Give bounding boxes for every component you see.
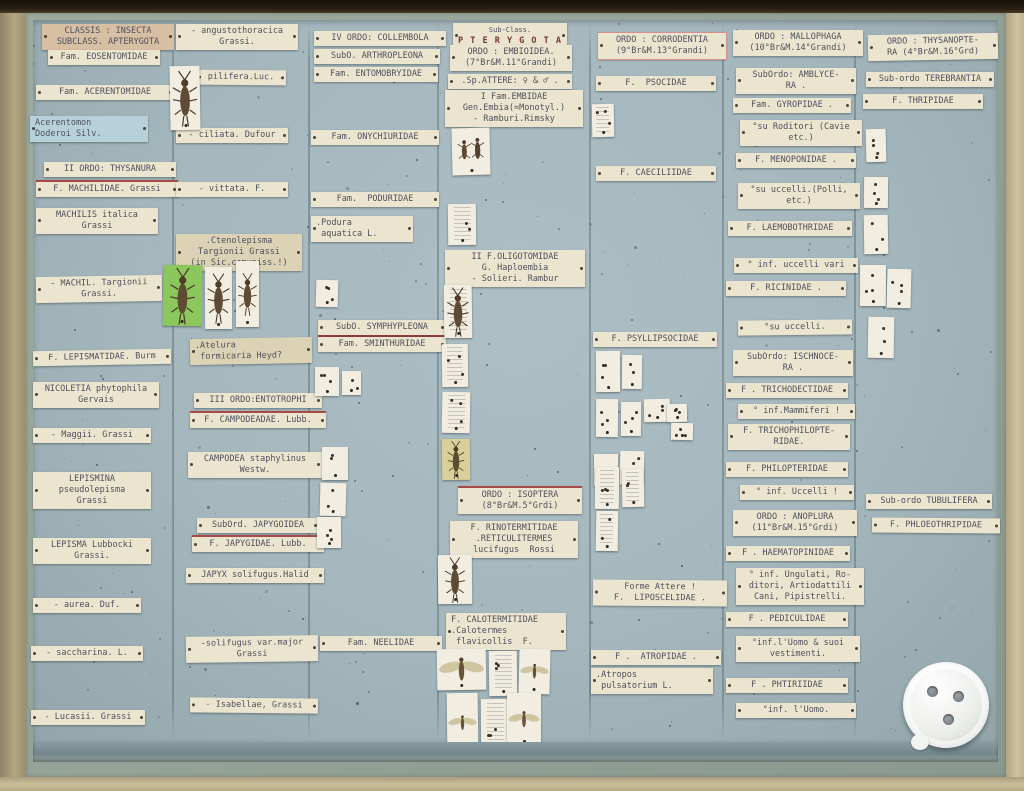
board-speck — [211, 612, 212, 613]
specimen-card — [595, 467, 620, 509]
specimen-card — [317, 517, 341, 548]
specimen-card — [864, 177, 888, 208]
label-atropos: .Atropos pulsatorium L. — [591, 668, 713, 694]
board-speck — [628, 264, 629, 265]
label-sub-ordo-terebrantia: Sub-ordo TEREBRANTIA — [866, 72, 994, 87]
board-speck — [715, 565, 716, 566]
specimen-dot — [495, 667, 498, 670]
board-speck — [387, 540, 388, 541]
board-speck — [521, 609, 523, 611]
board-speck — [93, 661, 95, 663]
board-speck — [901, 446, 903, 448]
board-speck — [100, 375, 102, 377]
board-speck — [618, 411, 620, 413]
board-speck — [302, 618, 304, 620]
specimen-card — [592, 104, 615, 137]
board-speck — [883, 307, 885, 309]
specimen-dot — [872, 139, 875, 142]
label-fam-poduridae: Fam. PODURIDAE — [311, 192, 439, 207]
board-speck — [163, 375, 165, 377]
label-atelura: .Atelura formicaria Heyd? — [190, 337, 312, 365]
specimen-dot — [465, 222, 468, 225]
board-speck — [907, 601, 909, 603]
board-speck — [712, 23, 713, 24]
specimen-dot — [877, 198, 880, 201]
board-speck — [634, 192, 635, 193]
label-f-laemobothridae: F. LAEMOBOTHRIDAE — [728, 221, 852, 236]
specimen-dot — [900, 290, 903, 293]
board-speck — [937, 70, 938, 71]
specimen-card — [442, 392, 471, 434]
specimen-dot — [320, 374, 323, 377]
specimen-dot — [865, 290, 868, 293]
label-ii-ordo-thysanura: II ORDO: THYSANURA — [44, 162, 176, 177]
board-speck — [198, 446, 201, 449]
board-speck — [839, 670, 840, 671]
specimen-dot — [873, 192, 876, 195]
label-subord-japygoidea: SubOrd. JAPYGOIDEA — [197, 518, 319, 533]
board-speck — [529, 566, 530, 567]
specimen-card — [163, 265, 203, 327]
specimen-dot — [876, 152, 879, 155]
board-speck — [358, 402, 360, 404]
board-speck — [92, 153, 93, 154]
label-iii-ordo-entotrophi: III ORDO:ENTOTROPHI — [194, 393, 322, 408]
board-speck — [727, 78, 729, 80]
label-campodea-staphylinus: CAMPODEA staphylinus Westw. — [188, 452, 322, 478]
board-speck — [847, 246, 849, 248]
board-speck — [130, 519, 131, 520]
label-f-atropidae: F . ATROPIDAE . — [591, 650, 721, 665]
board-speck — [864, 396, 865, 397]
label-f-menoponidae: F. MENOPONIDAE . — [736, 153, 856, 168]
specimen-dot — [604, 364, 607, 367]
board-speck — [604, 251, 605, 252]
board-speck — [856, 384, 858, 386]
board-speck — [291, 168, 293, 170]
specimen-dot — [604, 488, 607, 491]
label-machil-targionii: - MACHIL. Targionii Grassi. — [36, 275, 162, 303]
board-speck — [112, 573, 113, 574]
label-machilis-italica: MACHILIS italica Grassi — [36, 208, 158, 234]
specimen-card — [489, 651, 518, 696]
board-speck — [856, 450, 858, 452]
board-speck — [257, 96, 260, 99]
label-japyx-solifugus-halid: JAPYX solifugus.Halid — [186, 568, 324, 583]
board-speck — [558, 228, 560, 230]
label-inf-ungulati-ro: ° inf. Ungulati, Ro- ditori, Artiodattil… — [736, 568, 864, 605]
board-speck — [851, 338, 853, 340]
board-speck — [425, 283, 427, 285]
specimen-dot — [604, 110, 607, 113]
board-speck — [118, 731, 119, 732]
label-subordo-amblyce: SubOrdo: AMBLYCE- RA . — [736, 68, 856, 94]
label-fam-onychiuridae: Fam. ONYCHIURIDAE — [311, 130, 439, 145]
specimen-dot — [900, 284, 903, 287]
board-speck — [383, 249, 384, 250]
board-speck — [389, 261, 390, 262]
board-speck — [182, 204, 184, 206]
specimen-dot — [608, 121, 611, 124]
board-speck — [204, 668, 207, 671]
board-speck — [486, 364, 488, 366]
board-speck — [971, 142, 973, 144]
label-f-caeciliidae: F. CAECILIIDAE — [596, 166, 716, 181]
board-speck — [680, 395, 682, 397]
label-subordo-ischnoce: SubOrdo: ISCHNOCE- RA . — [733, 350, 853, 376]
board-speck — [232, 365, 234, 367]
label-f-rinotermitidae: F. RINOTERMITIDAE .RETICULITERMES lucifu… — [450, 521, 578, 558]
specimen-dot — [356, 387, 359, 390]
board-speck — [285, 501, 286, 502]
board-speck — [164, 527, 166, 529]
label-iv-ordo-collembola: IV ORDO: COLLEMBOLA — [314, 31, 446, 46]
specimen-dot — [882, 340, 885, 343]
specimen-dot — [871, 222, 874, 225]
specimen-card — [596, 351, 620, 392]
board-speck — [985, 430, 986, 431]
repellent-disc — [903, 662, 989, 748]
specimen-dot — [872, 144, 875, 147]
label-inf-uccelli: ° inf. Uccelli ! — [740, 485, 854, 500]
specimen-card — [622, 355, 642, 389]
board-speck — [481, 604, 483, 606]
case-frame-top — [0, 0, 1024, 13]
label-lucasii-grassi: - Lucasii. Grassi — [31, 710, 145, 725]
board-speck — [838, 345, 839, 346]
board-speck — [711, 545, 712, 546]
board-speck — [361, 490, 363, 492]
board-speck — [427, 443, 429, 445]
label-fam-acerentomidae: Fam. ACERENTOMIDAE — [36, 85, 174, 100]
board-speck — [809, 243, 811, 245]
specimen-card — [451, 128, 490, 176]
label-solifugus-var-major: -solifugus var.major Grassi — [186, 635, 318, 663]
board-speck — [420, 263, 422, 265]
label-f-thripidae: F. THRIPIDAE — [863, 94, 983, 109]
board-speck — [704, 213, 705, 214]
board-speck — [611, 728, 613, 730]
label-isabellae-grassi: - Isabellae, Grassi — [190, 697, 318, 713]
board-speck — [440, 93, 441, 94]
board-speck — [319, 314, 322, 317]
board-speck — [684, 274, 685, 275]
board-speck — [634, 246, 637, 249]
specimen-dot — [871, 274, 874, 277]
board-speck — [82, 444, 84, 446]
specimen-dot — [600, 411, 603, 414]
board-speck — [631, 319, 633, 321]
specimen-dot — [632, 371, 635, 374]
board-speck — [302, 51, 304, 53]
board-speck — [82, 419, 83, 420]
board-speck — [681, 565, 683, 567]
label-ordo-embioidea: ORDO : EMBIOIDEA. (7°Br&M.11°Grandi) — [450, 45, 572, 71]
case-frame-bottom — [0, 777, 1024, 791]
specimen-dot — [684, 434, 687, 437]
board-speck — [261, 144, 262, 145]
specimen-dot — [326, 505, 329, 508]
board-speck — [327, 161, 329, 163]
board-speck — [939, 617, 941, 619]
case-frame-left — [0, 13, 26, 791]
board-speck — [773, 65, 774, 66]
board-speck — [215, 695, 216, 696]
label-fam-entomobryidae: Fam. ENTOMOBRYIDAE — [314, 67, 438, 82]
board-speck — [150, 673, 151, 674]
board-speck — [900, 87, 902, 89]
specimen-dot — [661, 409, 664, 412]
board-speck — [480, 293, 482, 295]
board-speck — [517, 184, 518, 185]
board-speck — [905, 65, 906, 66]
board-speck — [537, 216, 538, 217]
board-speck — [71, 461, 72, 462]
board-speck — [392, 475, 394, 477]
label-su-uccelli-polli: °su uccelli.(Polli, etc.) — [738, 183, 860, 209]
specimen-dot — [675, 434, 678, 437]
label-f-phtiriidae: F . PHTIRIIDAE — [726, 678, 848, 693]
board-speck — [153, 245, 154, 246]
specimen-dot — [461, 372, 464, 375]
display-case: CLASSIS : INSECTA SUBCLASS. APTERYGOTAFa… — [0, 0, 1024, 791]
label-ciliata-dufour: - ciliata. Dufour — [176, 128, 288, 143]
board-speck — [808, 249, 810, 251]
board-speck — [78, 525, 79, 526]
specimen-card — [322, 447, 348, 480]
board-speck — [422, 571, 424, 573]
pinboard: CLASSIS : INSECTA SUBCLASS. APTERYGOTAFa… — [33, 20, 998, 742]
specimen-card — [864, 215, 889, 254]
specimen-dot — [328, 529, 331, 532]
specimen-dot — [606, 419, 609, 422]
board-speck — [718, 152, 721, 155]
label-forme-attere: Forme Attere ! F. LIPOSCELIDAE . — [593, 580, 727, 607]
board-speck — [295, 120, 296, 121]
board-speck — [288, 610, 290, 612]
specimen-dot — [871, 289, 874, 292]
label-f-psocidae: F. PSOCIDAE — [596, 76, 716, 91]
specimen-dot — [459, 402, 462, 405]
specimen-card — [621, 402, 641, 436]
board-speck — [636, 646, 637, 647]
specimen-dot — [329, 380, 332, 383]
board-speck — [915, 649, 917, 651]
board-speck — [707, 404, 709, 406]
specimen-card — [444, 285, 473, 338]
board-speck — [51, 113, 53, 115]
specimen-dot — [627, 482, 630, 485]
specimen-dot — [596, 111, 599, 114]
disc-hole — [953, 691, 964, 702]
board-speck — [362, 671, 364, 673]
label-fam-eosentomidae: Fam. EOSENTOMIDAE — [48, 50, 160, 65]
label-su-roditori-cavie: °su Roditori (Cavie etc.) — [740, 120, 862, 146]
disc-notch — [911, 734, 929, 750]
board-speck — [658, 543, 660, 545]
specimen-card — [205, 267, 232, 329]
label-f-japygidae-lubb: F. JAPYGIDAE. Lubb. — [192, 535, 324, 552]
label-inf-uccelli-vari: ° inf. uccelli vari — [734, 258, 858, 273]
board-speck — [355, 661, 357, 663]
specimen-dot — [882, 327, 885, 330]
specimen-dot — [601, 537, 604, 540]
board-speck — [954, 368, 955, 369]
board-speck — [84, 70, 86, 72]
specimen-dot — [635, 411, 638, 414]
board-speck — [800, 479, 802, 481]
specimen-card — [236, 261, 259, 327]
specimen-card — [438, 555, 472, 604]
column-divider — [308, 22, 310, 740]
specimen-dot — [661, 405, 664, 408]
board-speck — [505, 174, 506, 175]
specimen-dot — [330, 454, 333, 457]
board-speck — [937, 329, 940, 332]
board-speck — [911, 331, 913, 333]
specimen-dot — [881, 238, 884, 241]
specimen-dot — [457, 355, 460, 358]
specimen-dot — [678, 410, 681, 413]
specimen-card — [596, 399, 618, 437]
board-speck — [233, 299, 235, 301]
board-speck — [986, 172, 987, 173]
board-speck — [534, 448, 536, 450]
specimen-card — [887, 269, 912, 309]
board-speck — [408, 442, 410, 444]
board-speck — [102, 378, 104, 380]
label-fam-gyropidae: Fam. GYROPIDAE . — [733, 98, 851, 113]
specimen-dot — [331, 489, 334, 492]
label-saccharina-l: - saccharina. L. — [31, 646, 143, 661]
label-f-campodeadae-lubb: F. CAMPODEADAE. Lubb. — [190, 411, 326, 428]
label-ordo-isoptera: ORDO : ISOPTERA (8°Br&M.5°Grdi) — [458, 486, 582, 514]
specimen-card — [437, 649, 487, 691]
board-speck — [577, 374, 578, 375]
board-speck — [895, 730, 896, 731]
board-speck — [189, 666, 191, 668]
board-speck — [600, 98, 602, 100]
specimen-card — [320, 483, 347, 517]
specimen-dot — [648, 414, 651, 417]
label-ordo-thysanopte: ORDO : THYSANOPTE- RA (4°Br&M.16°Grd) — [868, 33, 998, 61]
board-speck — [416, 159, 418, 161]
specimen-dot — [624, 421, 627, 424]
specimen-dot — [331, 298, 334, 301]
board-speck — [904, 656, 906, 658]
board-speck — [158, 716, 160, 718]
label-inf-l-uomo: °inf. l'Uomo. — [736, 703, 856, 718]
board-speck — [415, 280, 417, 282]
board-speck — [485, 199, 487, 201]
board-speck — [741, 170, 742, 171]
board-speck — [123, 593, 124, 594]
board-speck — [59, 144, 61, 146]
board-speck — [955, 568, 956, 569]
board-bottom-shadow — [33, 742, 998, 762]
board-speck — [356, 702, 359, 705]
label-maggii-grassi: - Maggii. Grassi — [33, 428, 151, 443]
board-speck — [660, 261, 661, 262]
specimen-dot — [632, 462, 635, 465]
board-speck — [488, 343, 490, 345]
board-speck — [354, 480, 356, 482]
label-angustothoracica: - angustothoracica Grassi. — [176, 24, 298, 50]
label-ordo-anoplura: ORDO : ANOPLURA (11°Br&M.15°Grdi) — [733, 510, 857, 536]
board-speck — [599, 66, 601, 68]
label-f-pediculidae: F . PEDICULIDAE — [726, 612, 848, 627]
specimen-dot — [326, 534, 329, 537]
case-frame-right — [1006, 13, 1024, 791]
specimen-dot — [330, 457, 333, 460]
specimen-card — [315, 367, 339, 396]
specimen-card — [442, 344, 468, 387]
board-speck — [988, 540, 990, 542]
specimen-card — [507, 693, 541, 746]
specimen-card — [868, 317, 895, 358]
board-speck — [213, 630, 215, 632]
label-classis-insecta: CLASSIS : INSECTA SUBCLASS. APTERYGOTA — [42, 24, 174, 50]
board-speck — [951, 607, 953, 609]
board-speck — [542, 161, 544, 163]
label-f-lepismatidae-burm: F. LEPISMATIDAE. Burm — [33, 349, 171, 366]
label-f-haematopinidae: F . HAEMATOPINIDAE — [726, 546, 850, 561]
label-f-calotermitidae: F. CALOTERMITIDAE .Calotermes flavicolli… — [446, 613, 566, 650]
specimen-card — [667, 404, 687, 422]
specimen-dot — [460, 420, 463, 423]
board-speck — [988, 179, 990, 181]
specimen-dot — [494, 728, 497, 731]
label-f-psyllipsocidae: F. PSYLLIPSOCIDAE — [593, 332, 717, 347]
board-speck — [87, 689, 89, 691]
specimen-dot — [496, 664, 499, 667]
label-f-trichophilopte: F. TRICHOPHILOPTE- RIDAE. — [728, 424, 850, 450]
specimen-dot — [674, 409, 677, 412]
board-speck — [502, 201, 504, 203]
board-speck — [349, 663, 350, 664]
board-speck — [844, 666, 845, 667]
board-speck — [990, 351, 992, 353]
specimen-dot — [468, 228, 471, 231]
disc-hole — [943, 714, 954, 725]
board-speck — [388, 184, 389, 185]
board-speck — [305, 617, 306, 618]
label-ordo-mallophaga: ORDO : MALLOPHAGA (10°Br&M.14°Grandi) — [733, 30, 863, 56]
board-speck — [883, 254, 885, 256]
board-speck — [864, 515, 866, 517]
specimen-card — [169, 66, 200, 131]
label-f-trichodectidae: F . TRICHODECTIDAE — [726, 383, 848, 398]
board-speck — [275, 378, 277, 380]
label-pilifera-luc: pilifera.Luc. — [196, 70, 286, 86]
label-lepismina: LEPISMINA pseudolepisma Grassi — [33, 472, 151, 509]
board-speck — [351, 366, 353, 368]
specimen-card — [448, 204, 476, 245]
label-su-uccelli: °su uccelli. — [738, 319, 852, 335]
board-speck — [96, 464, 98, 466]
label-subo-arthropleona: SubO. ARTHROPLEONA — [314, 49, 440, 64]
board-speck — [950, 64, 951, 65]
label-i-fam-embidae: I Fam.EMBIDAE Gen.Embia(=Monotyl.) - Ram… — [445, 90, 583, 127]
label-f-phloeothripidae: F. PHLOEOTHRIPIDAE — [872, 517, 1000, 533]
label-aurea-duf: - aurea. Duf. — [33, 598, 141, 613]
label-acerentomon: Acerentomon Doderoi Silv. — [30, 116, 148, 142]
board-speck — [33, 63, 35, 65]
label-podura: .Podura aquatica L. — [311, 216, 413, 242]
board-speck — [159, 638, 161, 640]
label-inf-mammiferi: ° inf.Mammiferi ! — [738, 404, 855, 419]
specimen-dot — [330, 538, 333, 541]
